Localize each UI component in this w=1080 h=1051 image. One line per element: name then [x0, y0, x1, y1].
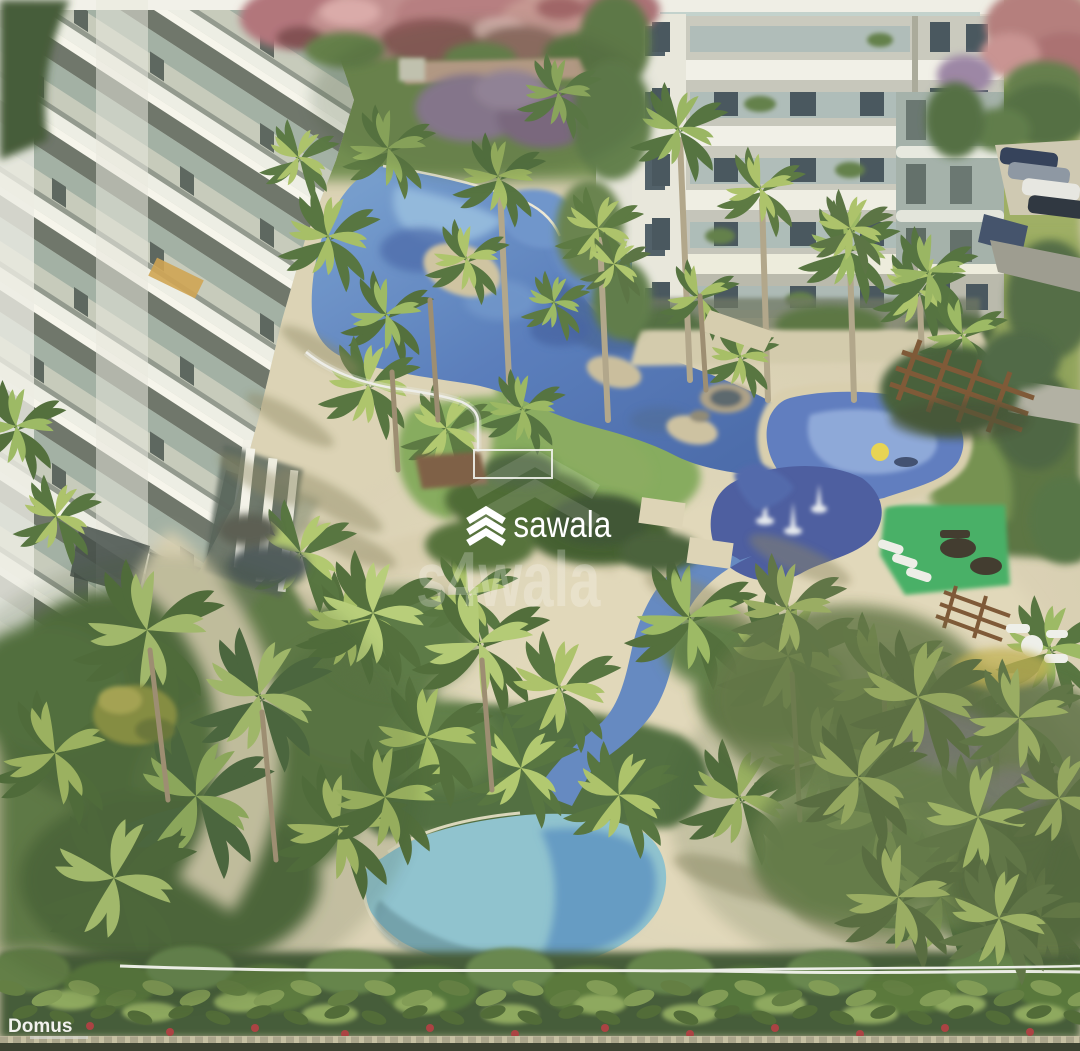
svg-text:Domus: Domus	[8, 1016, 72, 1037]
svg-text:s4wala: s4wala	[416, 536, 601, 623]
svg-text:sawala: sawala	[513, 505, 612, 546]
